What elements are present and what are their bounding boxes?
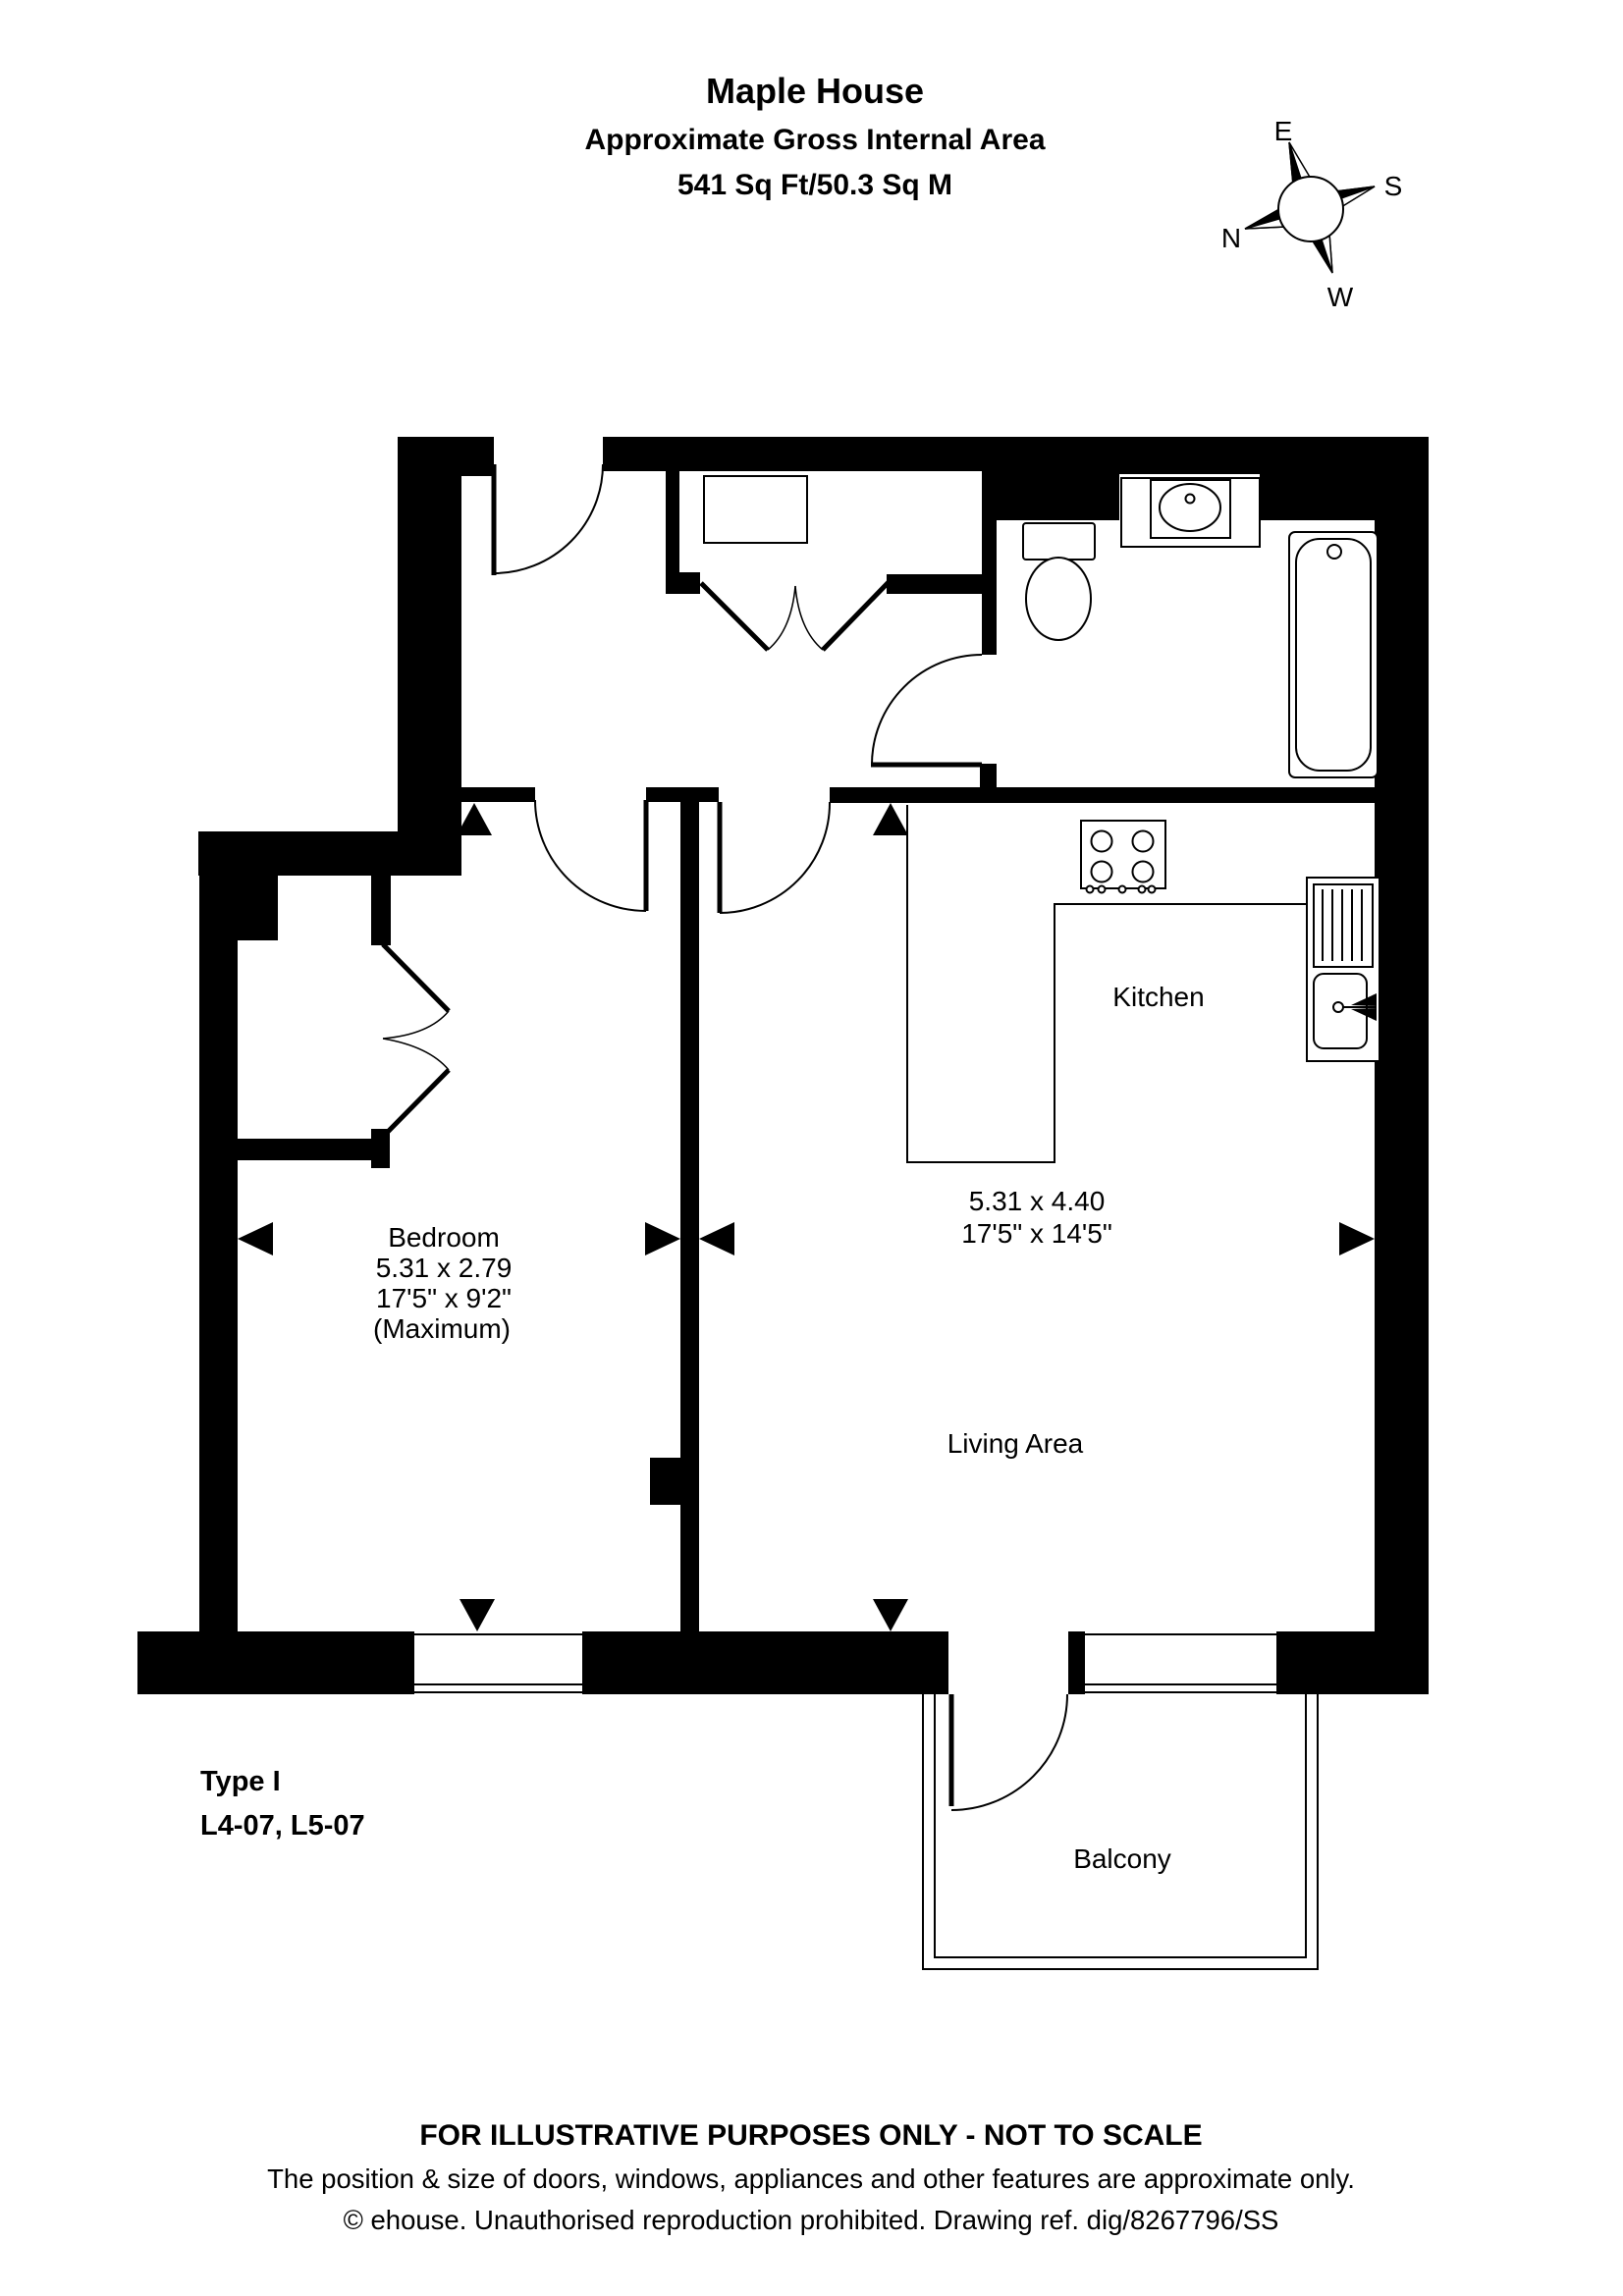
units-label: L4-07, L5-07 [200,1810,365,1842]
wall-openings [414,474,1276,1694]
compass-w: W [1327,282,1354,312]
bedroom-dims-ft: 17'5" x 9'2" [376,1283,512,1313]
living-label: Living Area [947,1428,1084,1459]
basin-icon [1121,478,1260,547]
compass-s: S [1384,171,1403,201]
floorplan-page: Maple House Approximate Gross Internal A… [0,0,1623,2296]
arrow-bedroom-left [238,1222,273,1255]
arrow-bedroom-right [645,1222,680,1255]
front-door [494,464,603,575]
walls [137,437,1429,1694]
living-dims-ft: 17'5" x 14'5" [961,1218,1112,1249]
arrow-bedroom-bottom [460,1599,495,1631]
hob-icon [1081,821,1165,893]
page-subtitle: Approximate Gross Internal Area [584,124,1045,156]
kitchen-label: Kitchen [1112,982,1204,1012]
hall-closet-doors [701,581,890,650]
bathtub-icon [1289,532,1378,777]
kitchen-sink-icon [1307,878,1380,1061]
type-label: Type I [200,1766,281,1797]
living-dims-m: 5.31 x 4.40 [969,1186,1106,1216]
footer-note: The position & size of doors, windows, a… [267,2163,1355,2194]
bedroom-note: (Maximum) [373,1313,511,1344]
compass-icon [1245,142,1375,273]
bedroom-door [535,800,646,911]
measurement-arrows [238,803,1375,1631]
compass-e: E [1274,116,1293,146]
arrow-living-top [873,803,908,835]
toilet-icon [1023,523,1095,640]
bathroom-door [871,655,982,765]
arrow-living-bottom [873,1599,908,1631]
floorplan-svg: Maple House Approximate Gross Internal A… [0,0,1623,2296]
bedroom-dims-m: 5.31 x 2.79 [376,1253,513,1283]
footer-disclaimer: FOR ILLUSTRATIVE PURPOSES ONLY - NOT TO … [419,2119,1202,2152]
compass-n: N [1221,223,1241,253]
arrow-living-left [699,1222,734,1255]
arrow-living-right [1339,1222,1375,1255]
closet-appliance [704,476,807,543]
bedroom-closet-doors [383,944,449,1137]
bedroom-label: Bedroom [388,1222,500,1253]
living-room-door [720,802,830,913]
balcony-door [951,1694,1067,1810]
footer-copyright: © ehouse. Unauthorised reproduction proh… [344,2205,1279,2235]
arrow-bedroom-top [457,803,492,835]
page-area: 541 Sq Ft/50.3 Sq M [677,169,952,201]
balcony-label: Balcony [1073,1843,1171,1874]
balcony-railing [923,1694,1318,1969]
page-title: Maple House [706,71,924,111]
